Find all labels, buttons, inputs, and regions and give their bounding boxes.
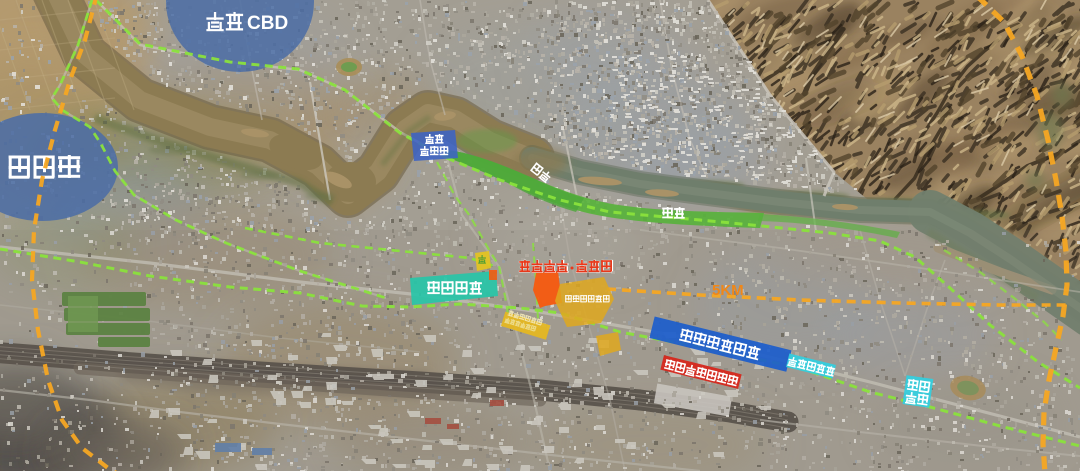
- svg-text:5KM: 5KM: [712, 282, 744, 299]
- svg-text:CBD: CBD: [247, 13, 288, 34]
